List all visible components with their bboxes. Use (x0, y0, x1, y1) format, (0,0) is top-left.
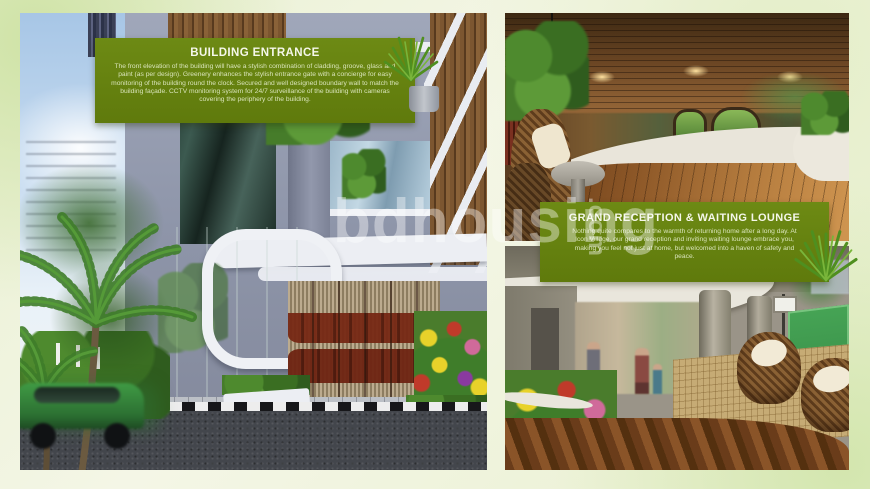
callout-body: Nothing quite compares to the warmth of … (566, 228, 803, 261)
balcony-plant (342, 149, 386, 199)
plant-icon (379, 28, 443, 90)
recessed-light (589, 71, 615, 83)
plant-icon (789, 220, 863, 292)
callout-title: BUILDING ENTRANCE (105, 47, 405, 59)
plant-pot (409, 86, 439, 112)
person-figure (635, 348, 649, 394)
recessed-light (683, 65, 709, 77)
green-car (20, 365, 148, 453)
grand-reception-callout: GRAND RECEPTION & WAITING LOUNGE Nothing… (540, 202, 829, 282)
planter-plant (801, 91, 849, 135)
child-figure (653, 364, 662, 394)
building-entrance-callout: BUILDING ENTRANCE The front elevation of… (95, 38, 415, 123)
lobby-door (531, 308, 559, 374)
flower-bed (414, 311, 487, 401)
callout-body: The front elevation of the building will… (108, 63, 402, 104)
callout-title: GRAND RECEPTION & WAITING LOUNGE (550, 212, 819, 224)
brochure-page: BUILDING ENTRANCE The front elevation of… (0, 0, 870, 489)
interior-plant (505, 21, 589, 121)
